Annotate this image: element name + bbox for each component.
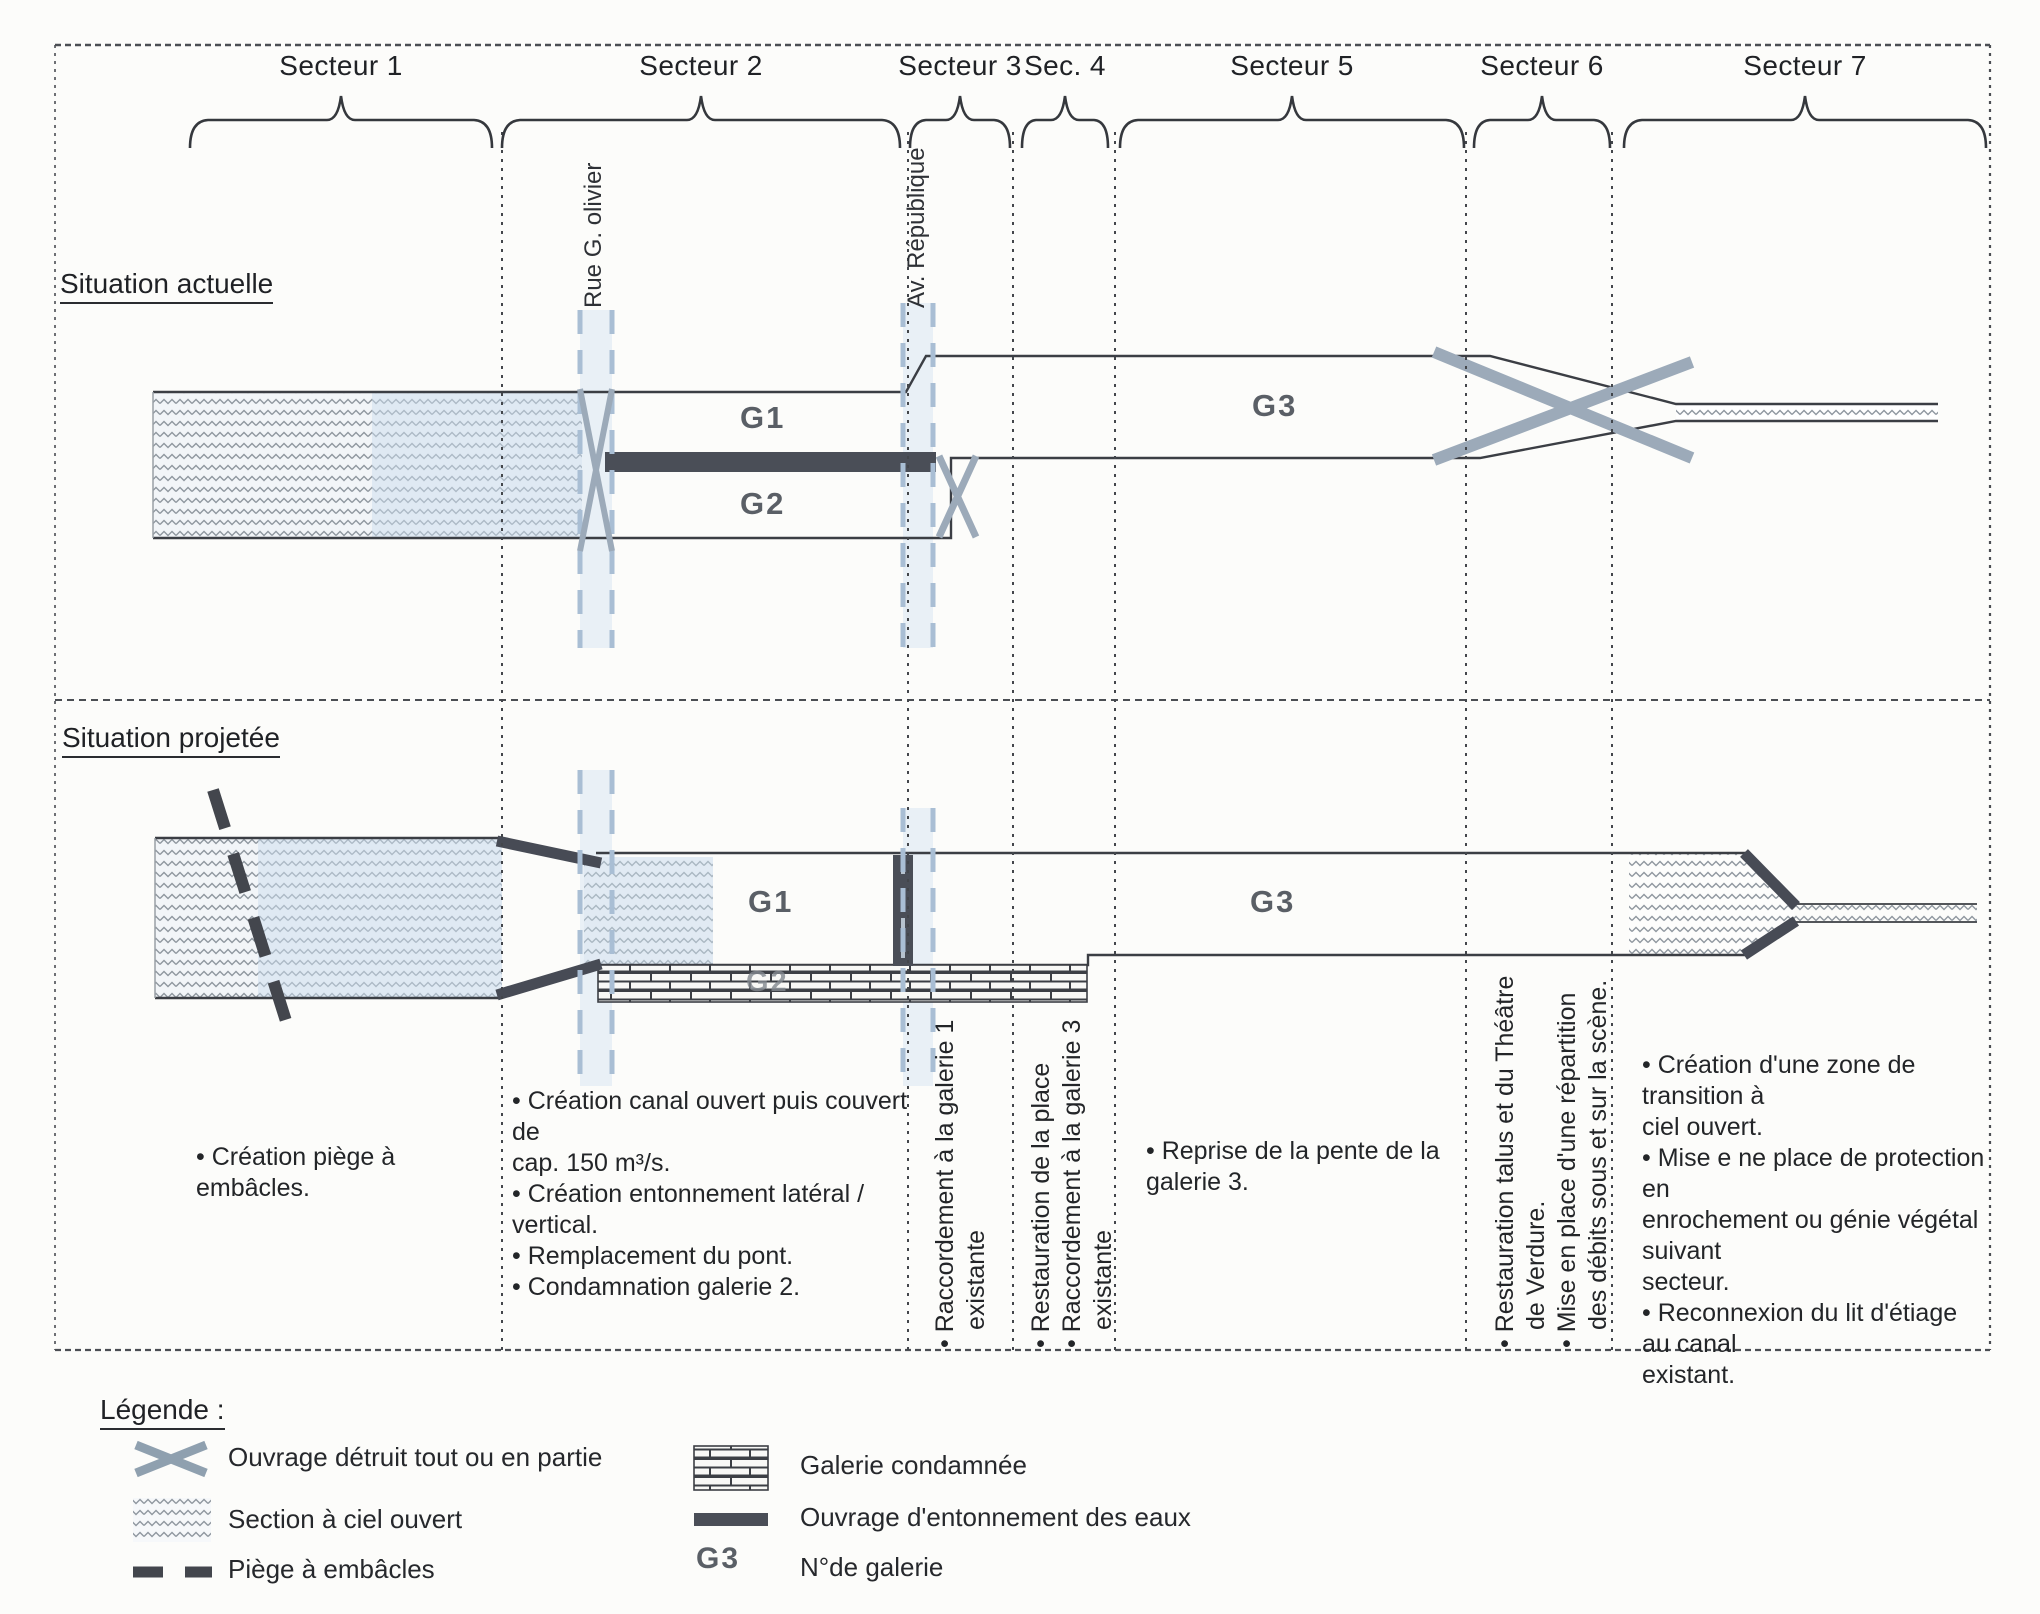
annotation-line: • Raccordement à la galerie 3 <box>1057 1028 1088 1348</box>
annotation-line: cap. 150 m³/s. <box>512 1148 912 1179</box>
open-channel-blue-wash-projected <box>258 838 502 998</box>
sector-label-7: Secteur 7 <box>1695 50 1915 82</box>
annotation-line: existante <box>961 1028 992 1348</box>
brace-secteur-7 <box>1624 96 1986 148</box>
annotation-line: • Création d'une zone de transition à <box>1642 1050 1988 1112</box>
street-label-rue-olivier: Rue G. olivier <box>580 136 614 308</box>
annotation-secteur4: • Restauration de la place • Raccordemen… <box>1026 1028 1122 1348</box>
sector-label-6: Secteur 6 <box>1432 50 1652 82</box>
annotation-line: • Création entonnement latéral / vertica… <box>512 1179 912 1241</box>
legend-label-open-air: Section à ciel ouvert <box>228 1504 462 1535</box>
brace-secteur-4 <box>1022 96 1108 148</box>
gallery-label-g1-projected: G1 <box>748 884 793 920</box>
gallery-label-g2-projected: G2 <box>746 966 789 999</box>
annotation-line: • Mise en place d'une répartition <box>1552 988 1583 1348</box>
annotation-line: secteur. <box>1642 1267 1988 1298</box>
legend-gallery-number-swatch: G3 <box>696 1542 740 1576</box>
annotation-line: • Création piège à embâcles. <box>196 1142 506 1204</box>
brace-secteur-1 <box>190 96 492 148</box>
narrow-open-canal-wash-projected <box>584 857 713 965</box>
annotation-line: • Restauration talus et du Théâtre <box>1490 988 1521 1348</box>
annotation-secteur5: • Reprise de la pente de la galerie 3. <box>1146 1136 1476 1198</box>
annotation-line: existant. <box>1642 1360 1988 1391</box>
legend-intake-bar-swatch <box>694 1513 768 1526</box>
destroyed-x-secteur6 <box>1434 352 1692 460</box>
legend-label-destroyed: Ouvrage détruit tout ou en partie <box>228 1442 602 1473</box>
legend-title: Légende : <box>100 1394 225 1426</box>
annotation-line: • Raccordement à la galerie 1 <box>930 1028 961 1348</box>
sector-label-5: Secteur 5 <box>1182 50 1402 82</box>
legend-label-condemned: Galerie condamnée <box>800 1450 1027 1481</box>
annotation-line: • Mise e ne place de protection en <box>1642 1143 1988 1205</box>
current-situation-title-text: Situation actuelle <box>60 268 273 304</box>
annotation-line: • Restauration de la place <box>1026 1028 1057 1348</box>
gallery-bottom-outline-projected <box>596 955 1746 965</box>
sector-label-4: Sec. 4 <box>955 50 1175 82</box>
sector-label-1: Secteur 1 <box>231 50 451 82</box>
legend-label-debris-trap: Piège à embâcles <box>228 1554 435 1585</box>
brace-secteur-2 <box>502 96 900 148</box>
legend-open-air-hatch-swatch <box>133 1498 211 1542</box>
projected-situation-title: Situation projetée <box>62 722 280 754</box>
legend-brick-swatch <box>694 1446 768 1490</box>
legend-title-text: Légende : <box>100 1394 225 1430</box>
projected-situation-drawing <box>155 790 1977 1040</box>
sector-label-2: Secteur 2 <box>591 50 811 82</box>
legend-label-intake: Ouvrage d'entonnement des eaux <box>800 1502 1191 1533</box>
gallery-label-g1-current: G1 <box>740 400 785 436</box>
annotation-secteur2: • Création canal ouvert puis couvert de … <box>512 1086 912 1303</box>
gallery-label-g2-current: G2 <box>740 486 785 522</box>
current-situation-title: Situation actuelle <box>60 268 273 300</box>
downstream-strip-hatch-current <box>1676 404 1938 421</box>
annotation-line: • Création canal ouvert puis couvert de <box>512 1086 912 1148</box>
sector-braces <box>190 96 1986 148</box>
annotation-line: des débits sous et sur la scène. <box>1583 988 1614 1348</box>
street-label-av-republique: Av. République <box>903 136 937 308</box>
annotation-line: enrochement ou génie végétal suivant <box>1642 1205 1988 1267</box>
annotation-line: • Condamnation galerie 2. <box>512 1272 912 1303</box>
destroyed-x-gallery2-end <box>939 456 976 537</box>
annotation-line: • Remplacement du pont. <box>512 1241 912 1272</box>
brace-secteur-6 <box>1474 96 1610 148</box>
annotation-line: • Reconnexion du lit d'étiage au canal <box>1642 1298 1988 1360</box>
annotation-secteur6: • Restauration talus et du Théâtre de Ve… <box>1490 988 1614 1348</box>
water-intake-bar-current <box>605 452 936 472</box>
annotation-secteur1: • Création piège à embâcles. <box>196 1142 506 1204</box>
brace-secteur-5 <box>1120 96 1464 148</box>
legend-label-gallery-number: N°de galerie <box>800 1552 943 1583</box>
gallery-label-g3-current: G3 <box>1252 388 1297 424</box>
annotation-line: de Verdure. <box>1521 988 1552 1348</box>
open-channel-blue-wash-current <box>372 392 582 538</box>
projected-situation-title-text: Situation projetée <box>62 722 280 758</box>
gallery-label-g3-projected: G3 <box>1250 884 1295 920</box>
annotation-line: existante <box>1088 1028 1119 1348</box>
annotation-secteur7: • Création d'une zone de transition à ci… <box>1642 1050 1988 1391</box>
legend-destroyed-x-swatch <box>136 1445 206 1473</box>
annotation-secteur3: • Raccordement à la galerie 1 existante <box>930 1028 994 1348</box>
downstream-strip-hatch-projected <box>1794 905 1977 922</box>
annotation-line: • Reprise de la pente de la galerie 3. <box>1146 1136 1476 1198</box>
schematic-page: Secteur 1 Secteur 2 Secteur 3 Sec. 4 Sec… <box>0 0 2040 1614</box>
annotation-line: ciel ouvert. <box>1642 1112 1988 1143</box>
